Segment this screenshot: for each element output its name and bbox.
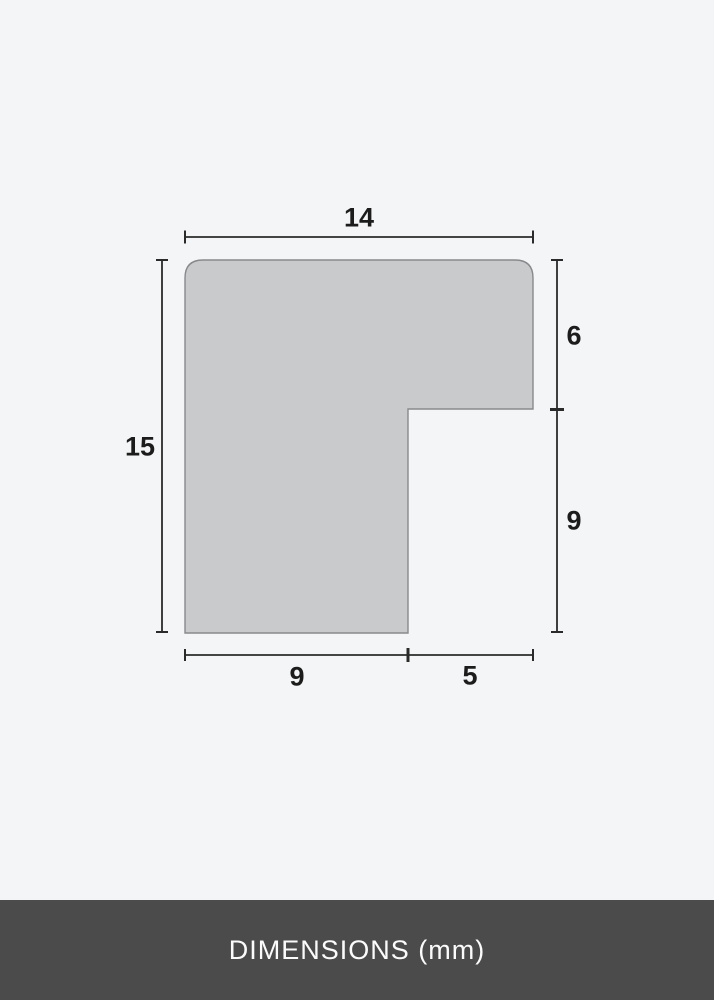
dim-label-right-lower: 9	[566, 508, 581, 535]
dim-label-bottom-left: 9	[289, 664, 304, 691]
footer-title: DIMENSIONS (mm)	[229, 937, 485, 964]
dim-label-total-width: 14	[344, 205, 374, 232]
dim-label-bottom-right: 5	[462, 663, 477, 690]
dim-label-right-upper: 6	[566, 323, 581, 350]
dim-label-total-height: 15	[125, 434, 155, 461]
profile-diagram	[0, 0, 714, 1000]
frame-profile-shape	[185, 260, 533, 633]
dimension-drawing: 14 15 6 9 9 5 DIMENSIONS (mm)	[0, 0, 714, 1000]
footer-bar: DIMENSIONS (mm)	[0, 900, 714, 1000]
